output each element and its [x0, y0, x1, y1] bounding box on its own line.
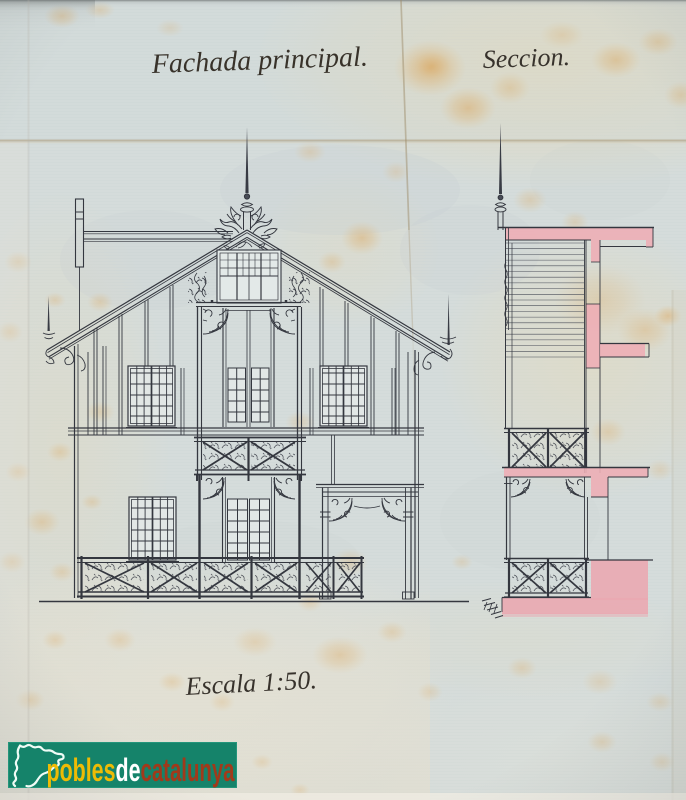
svg-text:de: de: [116, 752, 141, 788]
svg-text:Seccion.: Seccion.: [482, 42, 570, 74]
svg-text:pobles: pobles: [47, 752, 116, 788]
svg-text:catalunya: catalunya: [141, 752, 235, 788]
